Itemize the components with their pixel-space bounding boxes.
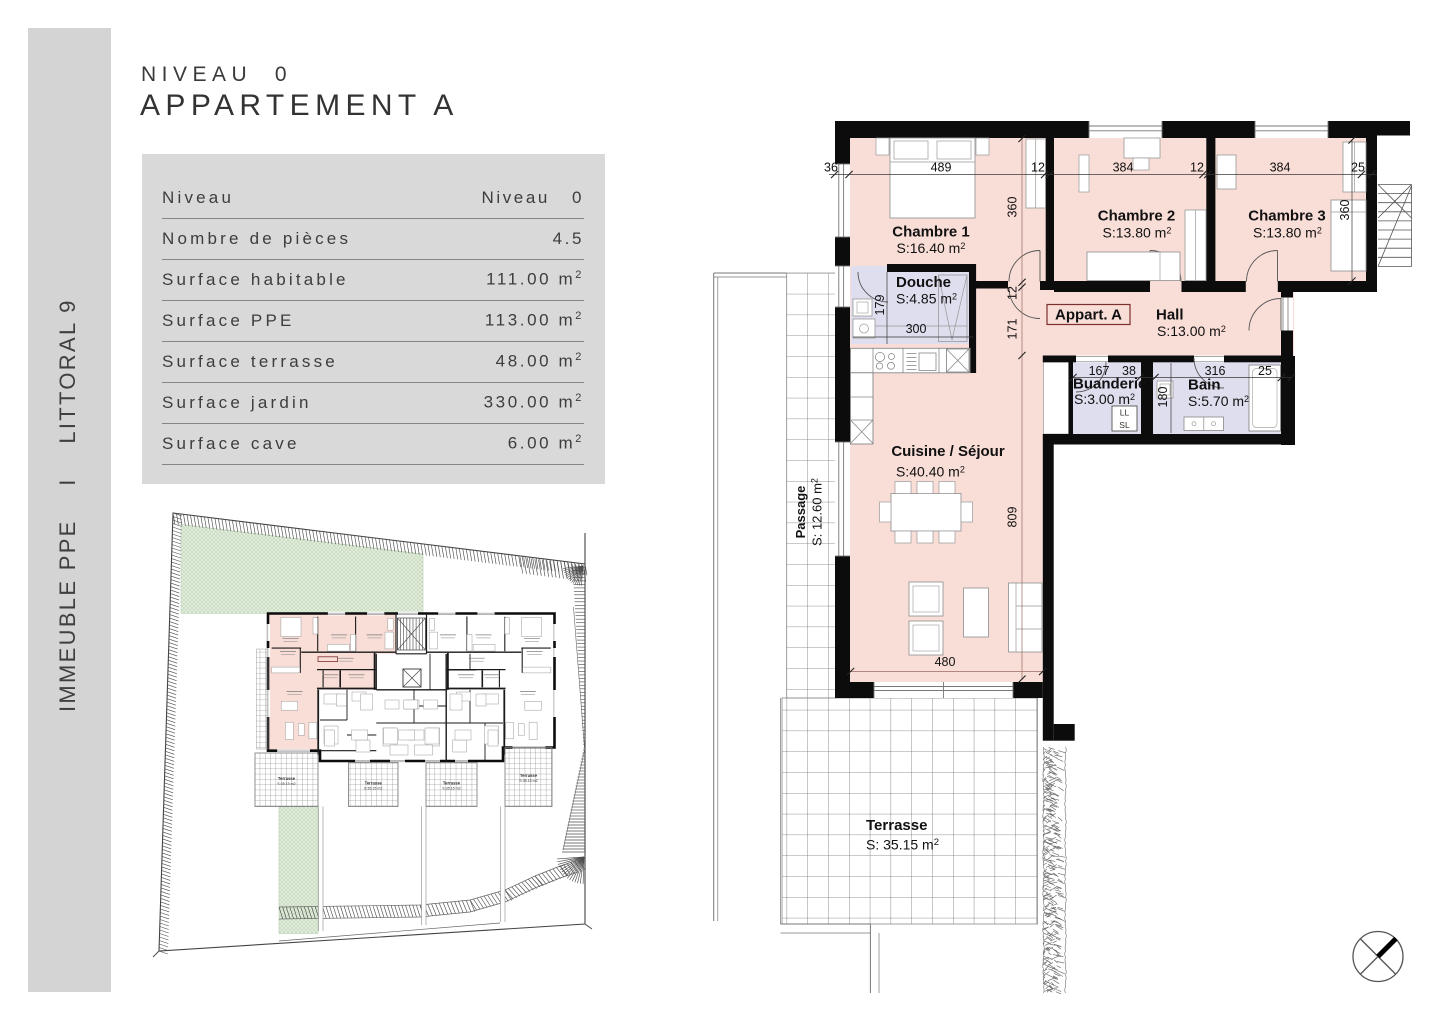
svg-text:489: 489	[931, 161, 952, 175]
svg-text:Hall: Hall	[1156, 307, 1184, 324]
svg-text:S:35.15 m2: S:35.15 m2	[442, 787, 460, 791]
svg-text:384: 384	[1113, 161, 1134, 175]
svg-text:12: 12	[1031, 161, 1045, 175]
svg-text:S: 35.15 m2: S: 35.15 m2	[866, 837, 939, 853]
svg-text:S:3.00 m2: S:3.00 m2	[1074, 391, 1135, 407]
svg-text:Chambre 2: Chambre 2	[1098, 208, 1176, 225]
svg-text:300: 300	[906, 322, 927, 336]
svg-text:S:13.80 m2: S:13.80 m2	[1103, 225, 1172, 241]
svg-text:Terrasse: Terrasse	[443, 781, 461, 786]
svg-text:36: 36	[824, 161, 838, 175]
svg-text:S:35.15 m2: S:35.15 m2	[364, 787, 382, 791]
svg-text:Buanderie: Buanderie	[1073, 376, 1146, 393]
svg-text:384: 384	[1270, 161, 1291, 175]
svg-text:Appart. A: Appart. A	[1055, 307, 1122, 324]
svg-text:180: 180	[1156, 387, 1170, 408]
svg-text:S:35.15 m2: S:35.15 m2	[277, 782, 295, 786]
svg-text:S:5.70 m2: S:5.70 m2	[1188, 393, 1249, 409]
svg-text:Terrasse: Terrasse	[365, 781, 383, 786]
svg-text:12: 12	[1190, 161, 1204, 175]
svg-text:LL: LL	[1120, 408, 1130, 418]
svg-text:360: 360	[1006, 197, 1020, 218]
svg-text:S:35.15 m2: S:35.15 m2	[519, 779, 537, 783]
svg-text:Chambre 3: Chambre 3	[1248, 208, 1326, 225]
svg-text:Chambre 1: Chambre 1	[892, 224, 970, 241]
svg-text:12: 12	[1006, 286, 1020, 300]
svg-text:Terrasse: Terrasse	[278, 776, 296, 781]
svg-text:179: 179	[873, 295, 887, 316]
svg-text:Terrasse: Terrasse	[520, 773, 538, 778]
svg-text:Terrasse: Terrasse	[866, 817, 927, 834]
svg-text:Douche: Douche	[896, 274, 951, 291]
svg-text:S:13.00 m2: S:13.00 m2	[1157, 323, 1226, 339]
svg-text:SL: SL	[1119, 420, 1130, 430]
svg-text:360: 360	[1338, 200, 1352, 221]
svg-text:Bain: Bain	[1188, 377, 1221, 394]
svg-text:Passage: Passage	[793, 486, 808, 539]
svg-text:480: 480	[935, 655, 956, 669]
svg-text:25: 25	[1351, 161, 1365, 175]
svg-text:Cuisine / Séjour: Cuisine / Séjour	[891, 443, 1005, 460]
svg-text:S: 12.60 m2: S: 12.60 m2	[810, 478, 825, 546]
svg-text:809: 809	[1006, 507, 1020, 528]
svg-text:171: 171	[1006, 319, 1020, 340]
svg-text:S:4.85 m2: S:4.85 m2	[896, 291, 957, 307]
svg-text:S:16.40 m2: S:16.40 m2	[897, 240, 966, 256]
svg-text:25: 25	[1258, 364, 1272, 378]
svg-text:S:13.80 m2: S:13.80 m2	[1253, 225, 1322, 241]
svg-text:S:40.40 m2: S:40.40 m2	[896, 464, 965, 480]
